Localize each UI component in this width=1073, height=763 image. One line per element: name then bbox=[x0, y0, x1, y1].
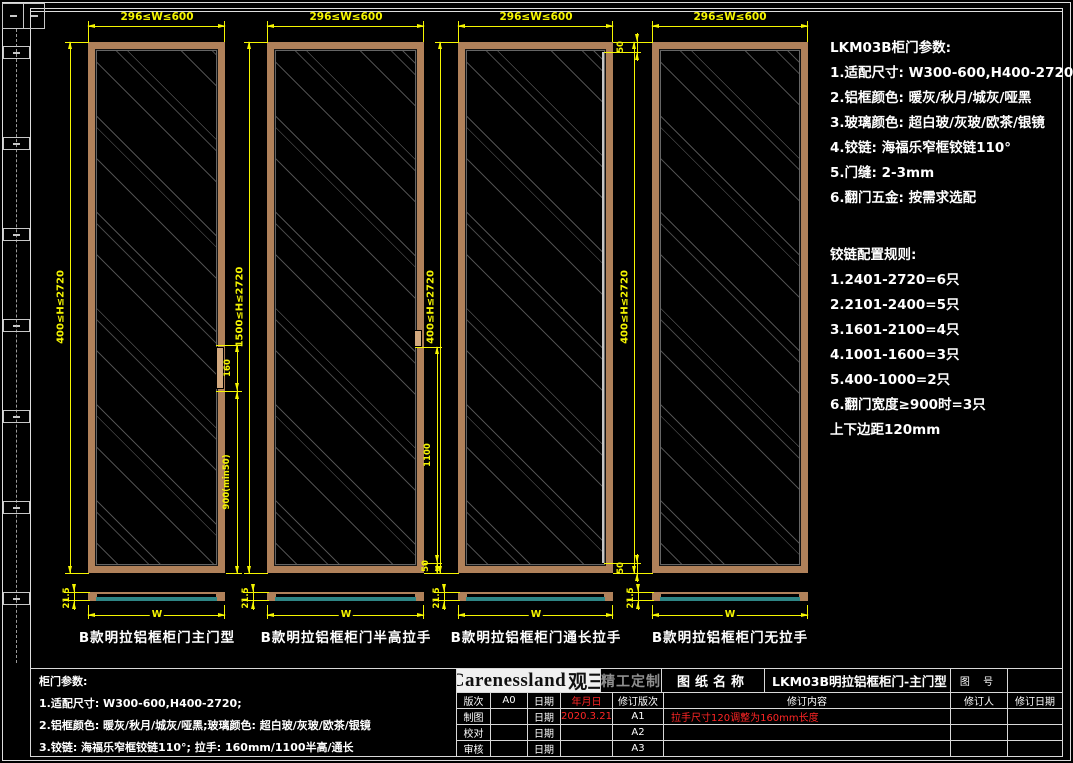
handle-dimension-line bbox=[237, 345, 238, 573]
frame-corner-box bbox=[23, 3, 45, 29]
dim-arrow bbox=[435, 346, 439, 354]
drawing-name-value: LKM03B明拉铝框柜门-主门型 bbox=[764, 668, 951, 693]
dim-arrow bbox=[235, 383, 239, 391]
section-frame-end bbox=[799, 592, 808, 601]
dim-arrow bbox=[801, 613, 809, 617]
dim-extension-line bbox=[226, 573, 242, 574]
door-type-label: B款明拉铝框柜门无拉手 bbox=[652, 626, 808, 646]
margin-dimension-line bbox=[637, 33, 638, 61]
dim-arrow bbox=[72, 584, 76, 592]
handle-bottom-dimension-text: 900(min50) bbox=[222, 454, 232, 509]
note-line: 1.2401-2720=6只 bbox=[830, 268, 986, 293]
drawing-no-label: 图 号 bbox=[950, 668, 1008, 693]
revision-person-header: 修订人 bbox=[950, 692, 1008, 709]
dim-arrow bbox=[457, 613, 465, 617]
frame-reference-mark bbox=[3, 319, 30, 332]
frame-corner-box bbox=[2, 3, 24, 29]
dim-arrow bbox=[635, 52, 639, 60]
thickness-dimension-line bbox=[444, 584, 445, 610]
revision-person bbox=[950, 708, 1008, 725]
dim-arrow bbox=[635, 555, 639, 563]
dim-arrow bbox=[651, 24, 659, 28]
revision-content bbox=[663, 740, 951, 757]
height-dimension-text: 400≤H≤2720 bbox=[56, 270, 67, 344]
revision-person bbox=[950, 724, 1008, 741]
revision-date bbox=[1007, 708, 1063, 725]
height-dimension-line bbox=[70, 42, 71, 573]
note-line: 3.1601-2100=4只 bbox=[830, 318, 986, 343]
handle-length-dimension-text: 160 bbox=[223, 359, 233, 377]
thickness-dimension-text: 21.5 bbox=[432, 588, 442, 609]
dim-arrow bbox=[636, 584, 640, 592]
revision-date-header: 修订日期 bbox=[1007, 692, 1063, 709]
door-glass bbox=[96, 50, 217, 565]
section-frame-end bbox=[604, 592, 613, 601]
hinge-rules-note: 铰链配置规则: 1.2401-2720=6只 2.2101-2400=5只 3.… bbox=[830, 243, 986, 443]
frame-reference-mark bbox=[3, 410, 30, 423]
section-top-edge bbox=[458, 592, 613, 594]
dim-extension-line bbox=[629, 573, 653, 574]
height-dimension-text: 400≤H≤2720 bbox=[426, 270, 437, 344]
brand-name: Carenessland bbox=[456, 670, 566, 692]
drawing-name-label: 图纸名称 bbox=[661, 668, 765, 693]
note-line: 2.2101-2400=5只 bbox=[830, 293, 986, 318]
revision-content-header: 修订内容 bbox=[663, 692, 951, 709]
approver-label: 审核 bbox=[456, 740, 491, 757]
door-parameters-note: LKM03B柜门参数: 1.适配尺寸: W300-600,H400-2720 2… bbox=[830, 36, 1073, 211]
section-width-dimension-text: W bbox=[339, 609, 353, 620]
note-line: 3.玻璃颜色: 超白玻/灰玻/欧茶/银镜 bbox=[830, 111, 1073, 136]
note-line: 2.铝框颜色: 暖灰/秋月/城灰/哑黑 bbox=[830, 86, 1073, 111]
section-frame-end bbox=[415, 592, 424, 601]
handle-dimension-line bbox=[437, 347, 438, 573]
height-dimension-line bbox=[634, 42, 635, 573]
width-dimension-line bbox=[88, 26, 225, 27]
date-value bbox=[560, 740, 613, 757]
frame-reference-mark bbox=[3, 46, 30, 59]
height-dimension-text: 1500≤H≤2720 bbox=[235, 267, 246, 348]
thickness-dimension-text: 21.5 bbox=[626, 588, 636, 609]
drafter-label: 制图 bbox=[456, 708, 491, 725]
bottom-margin-dimension-text: 50 bbox=[616, 562, 626, 574]
section-width-dimension-text: W bbox=[150, 609, 164, 620]
revision-person bbox=[950, 740, 1008, 757]
dim-extension-line bbox=[244, 42, 268, 43]
height-dimension-text: 400≤H≤2720 bbox=[620, 270, 631, 344]
door-type-label: B款明拉铝框柜门半高拉手 bbox=[261, 626, 432, 646]
dim-arrow bbox=[636, 601, 640, 609]
section-width-dimension-text: W bbox=[529, 609, 543, 620]
dim-extension-line bbox=[244, 573, 268, 574]
cad-drawing-canvas: 296≤W≤600 400≤H≤2720 160 900(min50) 296≤… bbox=[0, 0, 1073, 763]
thickness-dimension-text: 21.5 bbox=[62, 588, 72, 609]
checker-label: 校对 bbox=[456, 724, 491, 741]
thickness-dimension-line bbox=[638, 584, 639, 610]
top-margin-dimension-text: 50 bbox=[616, 41, 626, 53]
note-line: 上下边距120mm bbox=[830, 418, 986, 443]
date-value: 2020.3.21 bbox=[560, 708, 613, 725]
door-elevation-full-handle bbox=[458, 42, 613, 573]
checker-value bbox=[490, 724, 528, 741]
dim-arrow bbox=[435, 555, 439, 563]
revision-no: A2 bbox=[612, 724, 664, 741]
door-type-label: B款明拉铝框柜门通长拉手 bbox=[451, 626, 622, 646]
dim-arrow bbox=[606, 613, 614, 617]
dim-arrow bbox=[87, 24, 95, 28]
brand-slogan: 精工定制 bbox=[600, 668, 662, 693]
dim-arrow bbox=[442, 601, 446, 609]
thickness-dimension-line bbox=[253, 584, 254, 610]
section-glass bbox=[466, 597, 605, 601]
revision-no-header: 修订版次 bbox=[612, 692, 664, 709]
section-top-edge bbox=[88, 592, 225, 594]
date-value: 年月日 bbox=[560, 692, 613, 709]
frame-reference-mark bbox=[3, 228, 30, 241]
dim-extension-line bbox=[65, 573, 89, 574]
note-line: 6.翻门五金: 按需求选配 bbox=[830, 186, 1073, 211]
dim-extension-line bbox=[435, 573, 459, 574]
note-line: 4.铰链: 海福乐窄框铰链110° bbox=[830, 136, 1073, 161]
brand-name-cn: 观三 bbox=[568, 668, 601, 693]
handle-height-dimension-text: 1100 bbox=[423, 443, 433, 467]
revision-no: A3 bbox=[612, 740, 664, 757]
dim-arrow bbox=[218, 613, 226, 617]
note-title: LKM03B柜门参数: bbox=[830, 36, 1073, 61]
section-width-dimension-text: W bbox=[723, 609, 737, 620]
note-title: 铰链配置规则: bbox=[830, 243, 986, 268]
dim-arrow bbox=[606, 24, 614, 28]
drafter-value bbox=[490, 708, 528, 725]
brand-logo: Carenessland 观三 bbox=[456, 668, 601, 693]
revision-row-value: A0 bbox=[490, 692, 528, 709]
section-glass bbox=[660, 597, 800, 601]
dim-arrow bbox=[457, 24, 465, 28]
bottom-margin-dimension-text: 50 bbox=[421, 560, 431, 572]
note-line: 4.1001-1600=3只 bbox=[830, 343, 986, 368]
dim-arrow bbox=[635, 573, 639, 581]
width-dimension-line bbox=[458, 26, 613, 27]
dim-arrow bbox=[417, 613, 425, 617]
drawing-no-value bbox=[1007, 668, 1063, 693]
dim-extension-line bbox=[629, 42, 653, 43]
section-top-edge bbox=[652, 592, 808, 594]
notes-line: 3.铰链: 海福乐窄框铰链110°; 拉手: 160mm/1100半高/通长 bbox=[31, 737, 456, 759]
dim-arrow bbox=[417, 24, 425, 28]
notes-title: 柜门参数: bbox=[31, 671, 456, 693]
section-glass bbox=[275, 597, 416, 601]
dim-arrow bbox=[251, 584, 255, 592]
dim-extension-line bbox=[65, 42, 89, 43]
dim-arrow bbox=[442, 584, 446, 592]
width-dimension-line bbox=[267, 26, 424, 27]
dim-arrow bbox=[801, 24, 809, 28]
revision-content bbox=[663, 724, 951, 741]
door-glass bbox=[466, 50, 605, 565]
dim-arrow bbox=[235, 566, 239, 574]
note-line: 6.翻门宽度≥900时=3只 bbox=[830, 393, 986, 418]
door-elevation-no-handle bbox=[652, 42, 808, 573]
thickness-dimension-line bbox=[74, 584, 75, 610]
date-label: 日期 bbox=[527, 692, 561, 709]
section-top-edge bbox=[267, 592, 424, 594]
note-line: 1.适配尺寸: W300-600,H400-2720 bbox=[830, 61, 1073, 86]
door-elevation-main bbox=[88, 42, 225, 573]
door-glass bbox=[660, 50, 800, 565]
dim-arrow bbox=[87, 613, 95, 617]
notes-line: 1.适配尺寸: W300-600,H400-2720; bbox=[31, 693, 456, 715]
frame-reference-mark bbox=[3, 501, 30, 514]
titleblock-notes: 柜门参数: 1.适配尺寸: W300-600,H400-2720; 2.铝框颜色… bbox=[30, 668, 457, 757]
height-dimension-line bbox=[249, 42, 250, 573]
frame-reference-mark bbox=[3, 592, 30, 605]
notes-line: 2.铝框颜色: 暖灰/秋月/城灰/哑黑;玻璃颜色: 超白玻/灰玻/欧茶/银镜 bbox=[31, 715, 456, 737]
dim-arrow bbox=[651, 613, 659, 617]
dim-arrow bbox=[235, 391, 239, 399]
width-dimension-text: 296≤W≤600 bbox=[693, 11, 766, 23]
revision-no: A1 bbox=[612, 708, 664, 725]
door-type-label: B款明拉铝框柜门主门型 bbox=[79, 626, 235, 646]
date-label: 日期 bbox=[527, 724, 561, 741]
revision-content: 拉手尺寸120调整为160mm长度 bbox=[663, 708, 951, 725]
dim-arrow bbox=[266, 613, 274, 617]
approver-value bbox=[490, 740, 528, 757]
door-glass bbox=[275, 50, 416, 565]
dim-arrow bbox=[251, 601, 255, 609]
dim-arrow bbox=[218, 24, 226, 28]
thickness-dimension-text: 21.5 bbox=[241, 588, 251, 609]
width-dimension-text: 296≤W≤600 bbox=[309, 11, 382, 23]
door-elevation-half-handle bbox=[267, 42, 424, 573]
margin-dimension-line bbox=[637, 554, 638, 582]
width-dimension-text: 296≤W≤600 bbox=[120, 11, 193, 23]
note-line: 5.门缝: 2-3mm bbox=[830, 161, 1073, 186]
height-dimension-line bbox=[440, 42, 441, 573]
frame-reference-mark bbox=[3, 137, 30, 150]
dim-arrow bbox=[266, 24, 274, 28]
date-value bbox=[560, 724, 613, 741]
frame-margin-dashed-line bbox=[16, 29, 17, 663]
revision-row-label: 版次 bbox=[456, 692, 491, 709]
dim-extension-line bbox=[435, 42, 459, 43]
width-dimension-text: 296≤W≤600 bbox=[499, 11, 572, 23]
door-handle bbox=[414, 330, 422, 347]
revision-date bbox=[1007, 724, 1063, 741]
section-glass bbox=[96, 597, 217, 601]
date-label: 日期 bbox=[527, 708, 561, 725]
width-dimension-line bbox=[652, 26, 808, 27]
note-line: 5.400-1000=2只 bbox=[830, 368, 986, 393]
revision-date bbox=[1007, 740, 1063, 757]
section-frame-end bbox=[216, 592, 225, 601]
dim-arrow bbox=[72, 601, 76, 609]
date-label: 日期 bbox=[527, 740, 561, 757]
door-handle-full-length bbox=[602, 52, 604, 563]
